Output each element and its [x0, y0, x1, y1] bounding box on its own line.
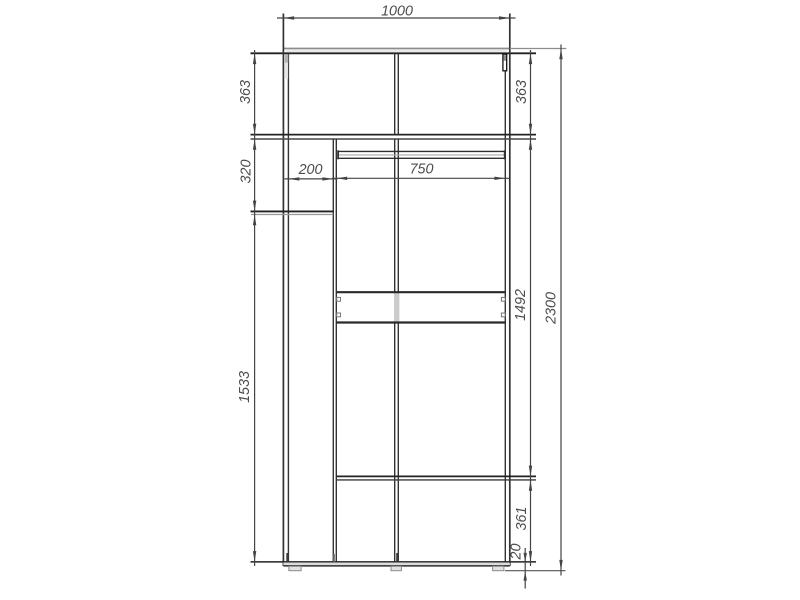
svg-text:750: 750	[410, 162, 434, 178]
svg-text:200: 200	[298, 162, 323, 178]
svg-text:320: 320	[239, 160, 255, 184]
svg-text:363: 363	[238, 80, 254, 104]
svg-text:20: 20	[509, 544, 525, 561]
svg-text:361: 361	[514, 507, 530, 531]
svg-text:363: 363	[514, 80, 530, 104]
svg-text:1492: 1492	[513, 289, 529, 321]
svg-text:1533: 1533	[237, 371, 253, 403]
svg-text:1000: 1000	[381, 4, 413, 20]
svg-text:2300: 2300	[544, 292, 560, 325]
